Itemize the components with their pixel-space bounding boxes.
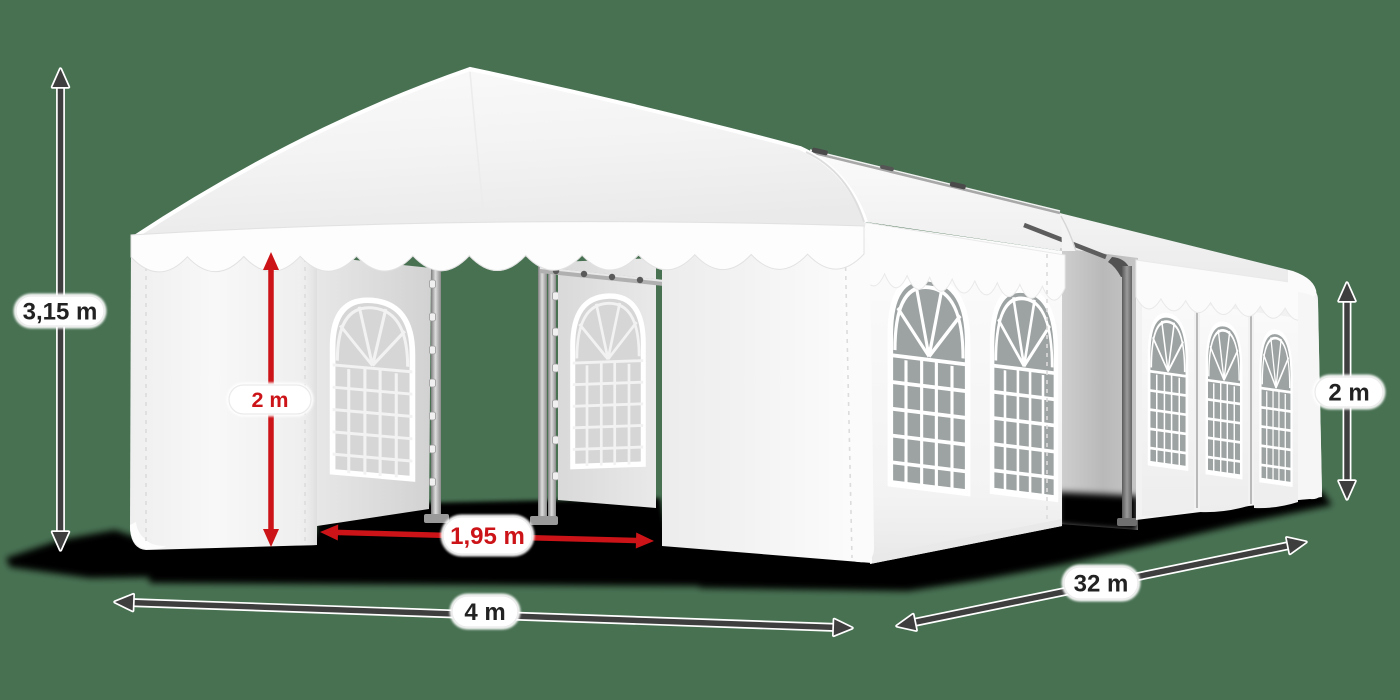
- svg-text:2 m: 2 m: [251, 388, 288, 412]
- svg-text:4 m: 4 m: [464, 599, 505, 626]
- svg-text:32 m: 32 m: [1074, 571, 1129, 598]
- svg-text:2 m: 2 m: [1328, 380, 1369, 407]
- svg-text:3,15 m: 3,15 m: [23, 299, 98, 326]
- svg-text:1,95 m: 1,95 m: [450, 523, 525, 550]
